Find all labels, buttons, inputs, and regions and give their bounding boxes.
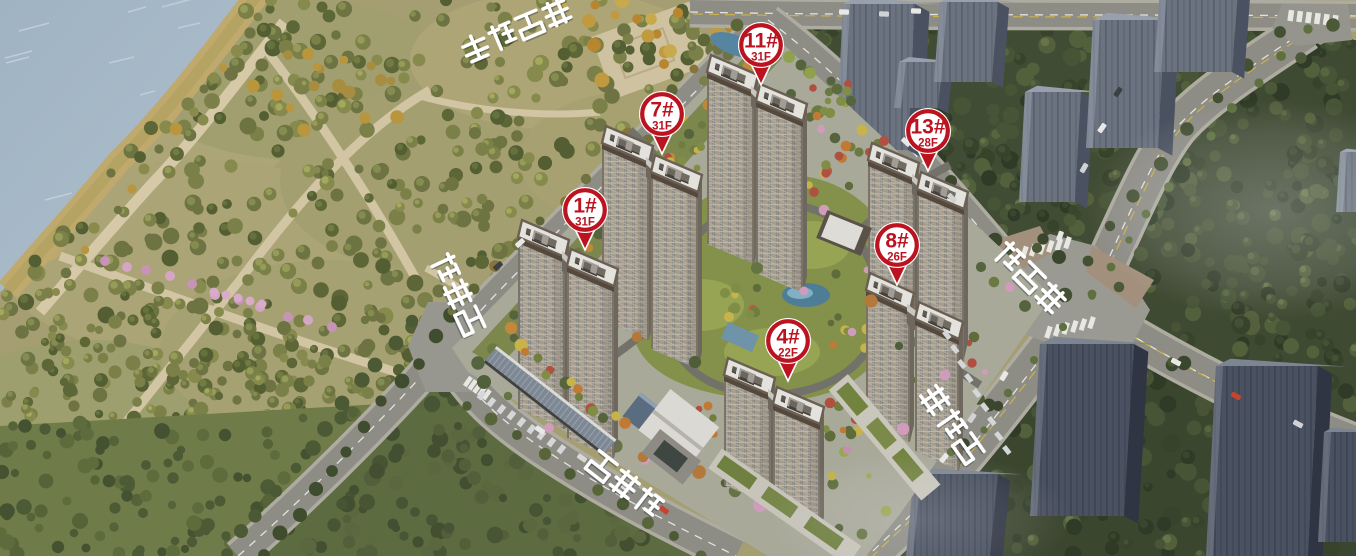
- svg-text:28F: 28F: [918, 138, 938, 150]
- svg-text:1#: 1#: [573, 195, 597, 218]
- svg-text:26F: 26F: [887, 252, 907, 264]
- svg-text:8#: 8#: [885, 230, 909, 253]
- svg-text:11#: 11#: [744, 30, 778, 53]
- svg-text:4#: 4#: [776, 326, 800, 349]
- svg-text:31F: 31F: [575, 217, 595, 229]
- svg-text:7#: 7#: [650, 99, 674, 122]
- svg-text:31F: 31F: [751, 52, 771, 64]
- svg-text:31F: 31F: [652, 121, 672, 133]
- svg-text:22F: 22F: [778, 348, 798, 360]
- svg-text:13#: 13#: [910, 116, 945, 139]
